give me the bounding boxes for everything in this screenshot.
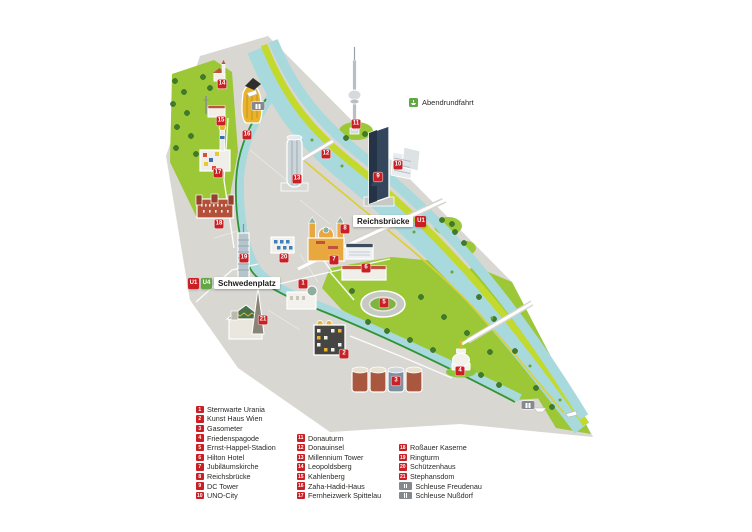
legend-number-badge: 13 [297, 454, 305, 462]
legend-item-label: Gasometer [207, 424, 243, 433]
rossauer-kaserne-illustration [196, 194, 234, 218]
map-marker-8: 8 [341, 225, 350, 234]
legend-number-badge: 21 [399, 473, 407, 481]
legend-item-label: Schützenhaus [410, 462, 456, 471]
legend-item: 8Reichsbrücke [196, 472, 276, 482]
legend-number-badge: 18 [399, 444, 407, 452]
legend-column-3: 18Roßauer Kaserne19Ringturm20Schützenhau… [399, 443, 482, 501]
legend-item-label: Millennium Tower [308, 453, 363, 462]
metro-line-badge-u1: U1 [415, 216, 426, 227]
map-marker-4: 4 [456, 367, 465, 376]
legend-item-label: Roßauer Kaserne [410, 443, 467, 452]
route-label-text: Abendrundfahrt [422, 98, 474, 107]
map-marker-17: 17 [214, 169, 223, 178]
boat-tour-badge [409, 98, 418, 107]
map-marker-6: 6 [362, 264, 371, 273]
legend-item-label: Ernst-Happel-Stadion [207, 443, 276, 452]
legend-column-1: 1Sternwarte Urania2Kunst Haus Wien3Gasom… [196, 405, 276, 501]
legend-number-badge: 14 [297, 463, 305, 471]
legend-number-badge: 17 [297, 492, 305, 500]
legend-number-badge: 4 [196, 434, 204, 442]
legend-item: 6Hilton Hotel [196, 452, 276, 462]
legend-number-badge: 19 [399, 454, 407, 462]
map-marker-12: 12 [322, 150, 331, 159]
legend-number-badge: 6 [196, 454, 204, 462]
legend-item-label: Zaha-Hadid-Haus [308, 482, 365, 491]
lock-icon [252, 102, 265, 110]
map-marker-15: 15 [217, 117, 226, 126]
lock-icon [399, 482, 412, 490]
schuetzenhaus-illustration [271, 237, 294, 253]
legend-item: 12Donauinsel [297, 443, 381, 453]
legend-item: 21Stephansdom [399, 472, 482, 482]
legend-number-badge: 15 [297, 473, 305, 481]
legend-item: 19Ringturm [399, 452, 482, 462]
legend-item-label: Schleuse Freudenau [416, 482, 482, 491]
station-label-reichsbruecke: Reichsbrücke [353, 215, 413, 227]
legend-item: 15Kahlenberg [297, 472, 381, 482]
legend-item-label: Jubiläumskirche [207, 462, 259, 471]
legend-item-label: Leopoldsberg [308, 462, 352, 471]
legend-item: 5Ernst-Happel-Stadion [196, 443, 276, 453]
legend-item-label: Kahlenberg [308, 472, 345, 481]
legend-item-label: Kunst Haus Wien [207, 414, 263, 423]
legend-item: 9DC Tower [196, 481, 276, 491]
legend-item: 10UNO-City [196, 491, 276, 501]
legend-number-badge: 8 [196, 473, 204, 481]
legend-item: 18Roßauer Kaserne [399, 443, 482, 453]
legend-item: Schleuse Freudenau [399, 481, 482, 491]
legend-number-badge: 20 [399, 463, 407, 471]
boat-icon [410, 99, 417, 106]
map-marker-16: 16 [243, 131, 252, 140]
legend-number-badge: 12 [297, 444, 305, 452]
legend-item-label: UNO-City [207, 491, 238, 500]
dc-tower-illustration [364, 126, 394, 206]
legend-item-label: Fernheizwerk Spittelau [308, 491, 381, 500]
legend-item: 13Millennium Tower [297, 452, 381, 462]
legend-number-badge: 11 [297, 434, 305, 442]
station-schwedenplatz: U1U4Schwedenplatz [188, 277, 280, 289]
metro-line-badge-u1: U1 [188, 278, 199, 289]
legend-number-badge: 16 [297, 482, 305, 490]
map-marker-2: 2 [340, 350, 349, 359]
legend-item-label: DC Tower [207, 482, 238, 491]
legend-number-badge: 1 [196, 406, 204, 414]
legend-item-label: Ringturm [410, 453, 439, 462]
metro-line-badge-u4: U4 [201, 278, 212, 289]
legend-number-badge: 2 [196, 415, 204, 423]
legend-item-label: Hilton Hotel [207, 453, 244, 462]
legend-number-badge: 5 [196, 444, 204, 452]
map-marker-9: 9 [374, 173, 383, 182]
legend-item: 4Friedenspagode [196, 433, 276, 443]
lock-icon [522, 401, 535, 409]
map-marker-14: 14 [218, 80, 227, 89]
map-marker-11: 11 [352, 120, 361, 129]
map-marker-18: 18 [215, 220, 224, 229]
map-marker-3: 3 [392, 377, 401, 386]
lock-icon [399, 492, 412, 500]
map-marker-7: 7 [330, 256, 339, 265]
map-canvas: 123456789101112131415161718192021 Reichs… [0, 0, 752, 532]
legend-item: 20Schützenhaus [399, 462, 482, 472]
legend-number-badge: 7 [196, 463, 204, 471]
map-marker-20: 20 [280, 254, 289, 263]
legend-number-badge: 9 [196, 482, 204, 490]
legend-item-label: Donauinsel [308, 443, 344, 452]
legend-item-label: Schleuse Nußdorf [416, 491, 474, 500]
legend-number-badge: 3 [196, 425, 204, 433]
legend-item: 14Leopoldsberg [297, 462, 381, 472]
map-marker-1: 1 [299, 280, 308, 289]
legend-number-badge: 10 [196, 492, 204, 500]
map-marker-19: 19 [240, 254, 249, 263]
legend-item: Schleuse Nußdorf [399, 491, 482, 501]
legend-item: 2Kunst Haus Wien [196, 414, 276, 424]
legend-column-2: 11Donauturm12Donauinsel13Millennium Towe… [297, 433, 381, 500]
legend-item: 3Gasometer [196, 424, 276, 434]
legend-item: 11Donauturm [297, 433, 381, 443]
map-marker-13: 13 [293, 175, 302, 184]
legend-item-label: Reichsbrücke [207, 472, 251, 481]
legend-item: 17Fernheizwerk Spittelau [297, 491, 381, 501]
legend-item-label: Donauturm [308, 434, 344, 443]
legend-item: 1Sternwarte Urania [196, 405, 276, 415]
map-marker-5: 5 [380, 299, 389, 308]
legend-item-label: Sternwarte Urania [207, 405, 265, 414]
station-reichsbruecke: ReichsbrückeU1 [353, 215, 426, 227]
station-label-schwedenplatz: Schwedenplatz [214, 277, 280, 289]
legend-item-label: Stephansdom [410, 472, 454, 481]
legend-item-label: Friedenspagode [207, 434, 259, 443]
legend-item: 7Jubiläumskirche [196, 462, 276, 472]
route-label: Abendrundfahrt [409, 98, 474, 107]
map-marker-10: 10 [394, 161, 403, 170]
legend-item: 16Zaha-Hadid-Haus [297, 481, 381, 491]
map-marker-21: 21 [259, 316, 268, 325]
